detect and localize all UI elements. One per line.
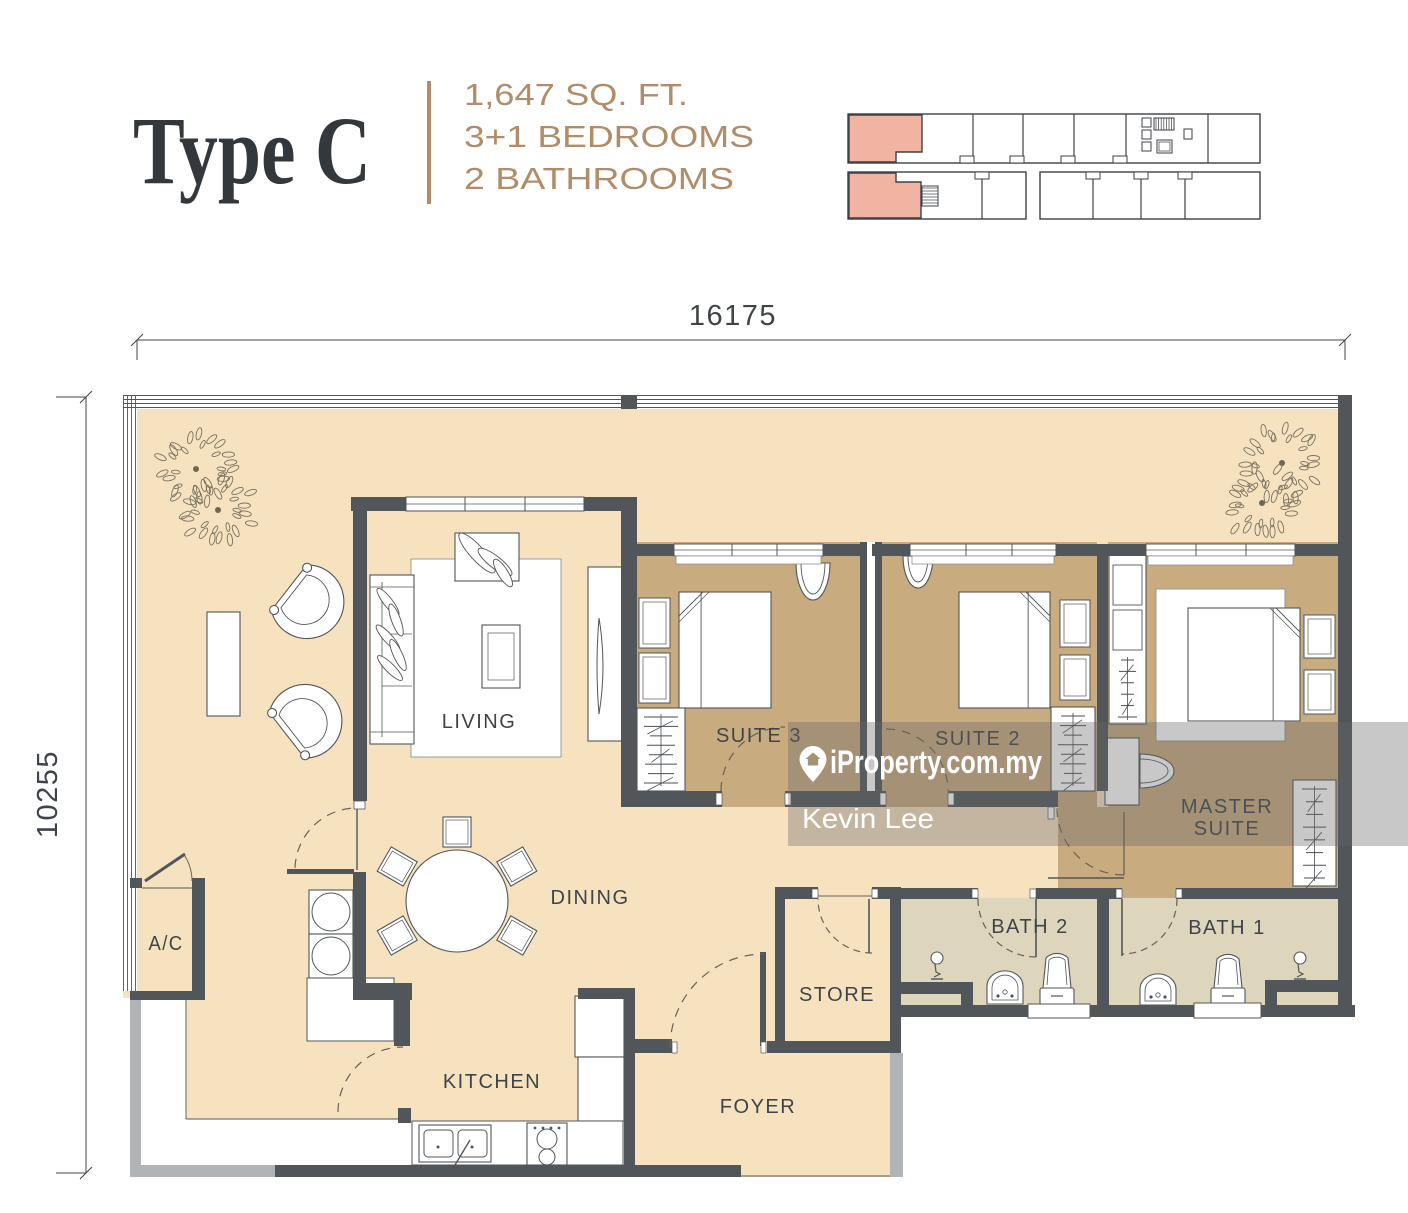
svg-text:Kevin Lee: Kevin Lee	[802, 803, 934, 834]
svg-text:A/C: A/C	[149, 933, 184, 955]
svg-text:DINING: DINING	[551, 887, 630, 909]
svg-text:BATH 1: BATH 1	[1188, 917, 1266, 939]
svg-text:1,647 SQ. FT.: 1,647 SQ. FT.	[464, 77, 688, 112]
svg-text:iProperty.com.my: iProperty.com.my	[830, 744, 1042, 780]
svg-text:KITCHEN: KITCHEN	[443, 1071, 541, 1093]
svg-text:3+1 BEDROOMS: 3+1 BEDROOMS	[464, 119, 754, 154]
svg-text:Type C: Type C	[133, 97, 371, 204]
svg-text:BATH 2: BATH 2	[991, 916, 1069, 938]
svg-text:LIVING: LIVING	[442, 711, 517, 733]
svg-text:STORE: STORE	[799, 984, 875, 1006]
svg-text:FOYER: FOYER	[720, 1096, 796, 1118]
svg-text:16175: 16175	[689, 300, 777, 332]
svg-text:2 BATHROOMS: 2 BATHROOMS	[464, 161, 734, 196]
svg-text:10255: 10255	[32, 750, 64, 838]
